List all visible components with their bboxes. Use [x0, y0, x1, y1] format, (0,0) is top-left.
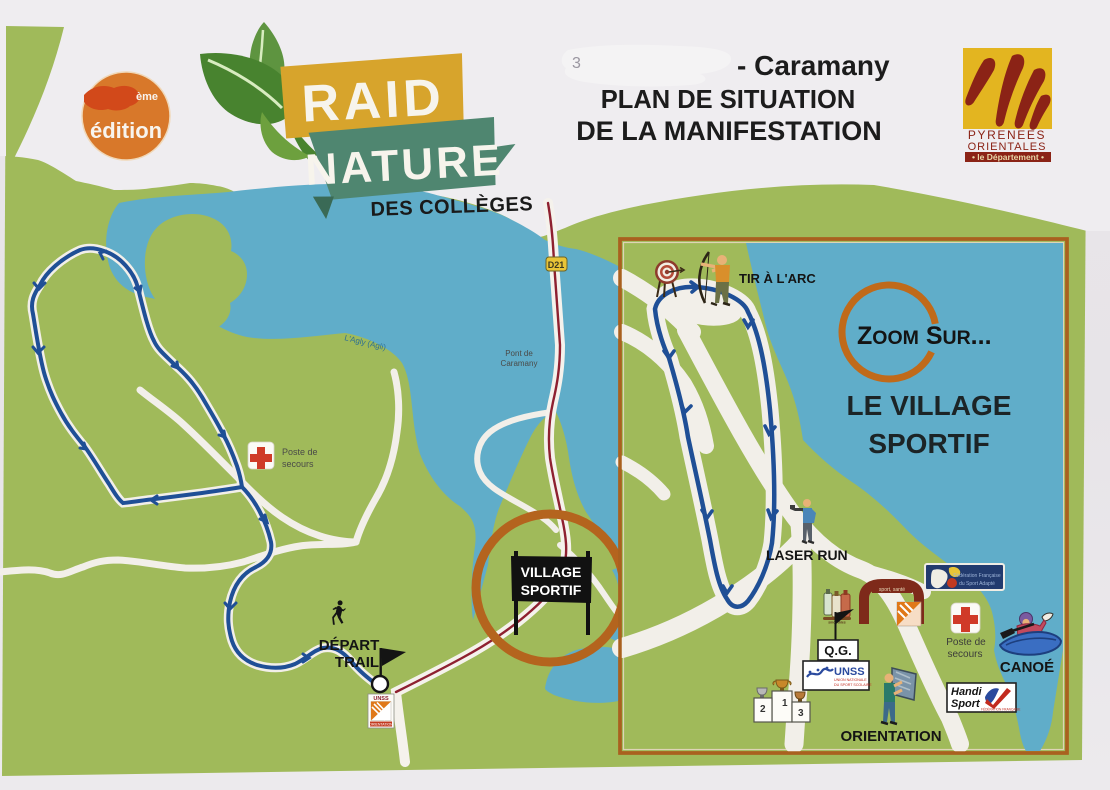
svg-text:1: 1 — [782, 698, 788, 709]
svg-text:Pont de: Pont de — [505, 349, 533, 358]
svg-text:Handi: Handi — [951, 686, 983, 698]
svg-text:UNSS: UNSS — [834, 666, 865, 678]
svg-text:Fédération Française: Fédération Française — [953, 573, 1000, 579]
svg-text:sport, santé: sport, santé — [879, 587, 905, 593]
svg-text:3: 3 — [572, 55, 581, 72]
svg-text:du Sport Adapté: du Sport Adapté — [959, 581, 995, 587]
svg-text:UNSS: UNSS — [373, 696, 389, 702]
svg-text:SPORTIF: SPORTIF — [521, 582, 582, 598]
svg-text:- Caramany: - Caramany — [737, 50, 890, 81]
svg-text:2: 2 — [760, 704, 766, 715]
svg-text:Poste de: Poste de — [282, 447, 318, 457]
svg-text:Poste de: Poste de — [946, 637, 986, 648]
svg-text:• le Département •: • le Département • — [972, 152, 1044, 162]
svg-text:DE LA MANIFESTATION: DE LA MANIFESTATION — [576, 116, 881, 146]
svg-text:UNION NATIONALE: UNION NATIONALE — [834, 678, 867, 682]
svg-text:ZOOM SUR...: ZOOM SUR... — [857, 322, 992, 350]
svg-text:ORIENTATION: ORIENTATION — [840, 728, 941, 745]
svg-text:TIR À L'ARC: TIR À L'ARC — [739, 271, 816, 286]
svg-text:LE VILLAGE: LE VILLAGE — [847, 390, 1012, 421]
svg-text:PYRENEES: PYRENEES — [968, 128, 1046, 142]
svg-text:FÉDÉRATION FRANÇAISE: FÉDÉRATION FRANÇAISE — [981, 707, 1020, 712]
svg-text:Sport: Sport — [951, 698, 981, 710]
svg-text:ème: ème — [136, 91, 158, 103]
svg-text:CANOÉ: CANOÉ — [1000, 659, 1054, 676]
svg-text:VILLAGE: VILLAGE — [521, 564, 582, 580]
svg-text:PLAN DE SITUATION: PLAN DE SITUATION — [601, 86, 856, 114]
svg-text:D21: D21 — [548, 260, 565, 270]
svg-text:SPORTIF: SPORTIF — [868, 428, 989, 459]
svg-text:secours: secours — [282, 459, 314, 469]
svg-text:secours: secours — [947, 649, 982, 660]
svg-text:DÉPART: DÉPART — [319, 637, 380, 654]
svg-text:TRAIL: TRAIL — [335, 654, 379, 671]
svg-text:Q.G.: Q.G. — [824, 643, 851, 658]
svg-text:NATURE: NATURE — [304, 136, 504, 195]
svg-text:Caramany: Caramany — [501, 359, 538, 368]
svg-text:3: 3 — [798, 708, 804, 719]
svg-text:édition: édition — [90, 118, 162, 143]
svg-text:ORIENTATION: ORIENTATION — [369, 723, 393, 727]
svg-text:DU SPORT SCOLAIRE: DU SPORT SCOLAIRE — [834, 683, 872, 687]
svg-text:LASER RUN: LASER RUN — [766, 547, 848, 563]
